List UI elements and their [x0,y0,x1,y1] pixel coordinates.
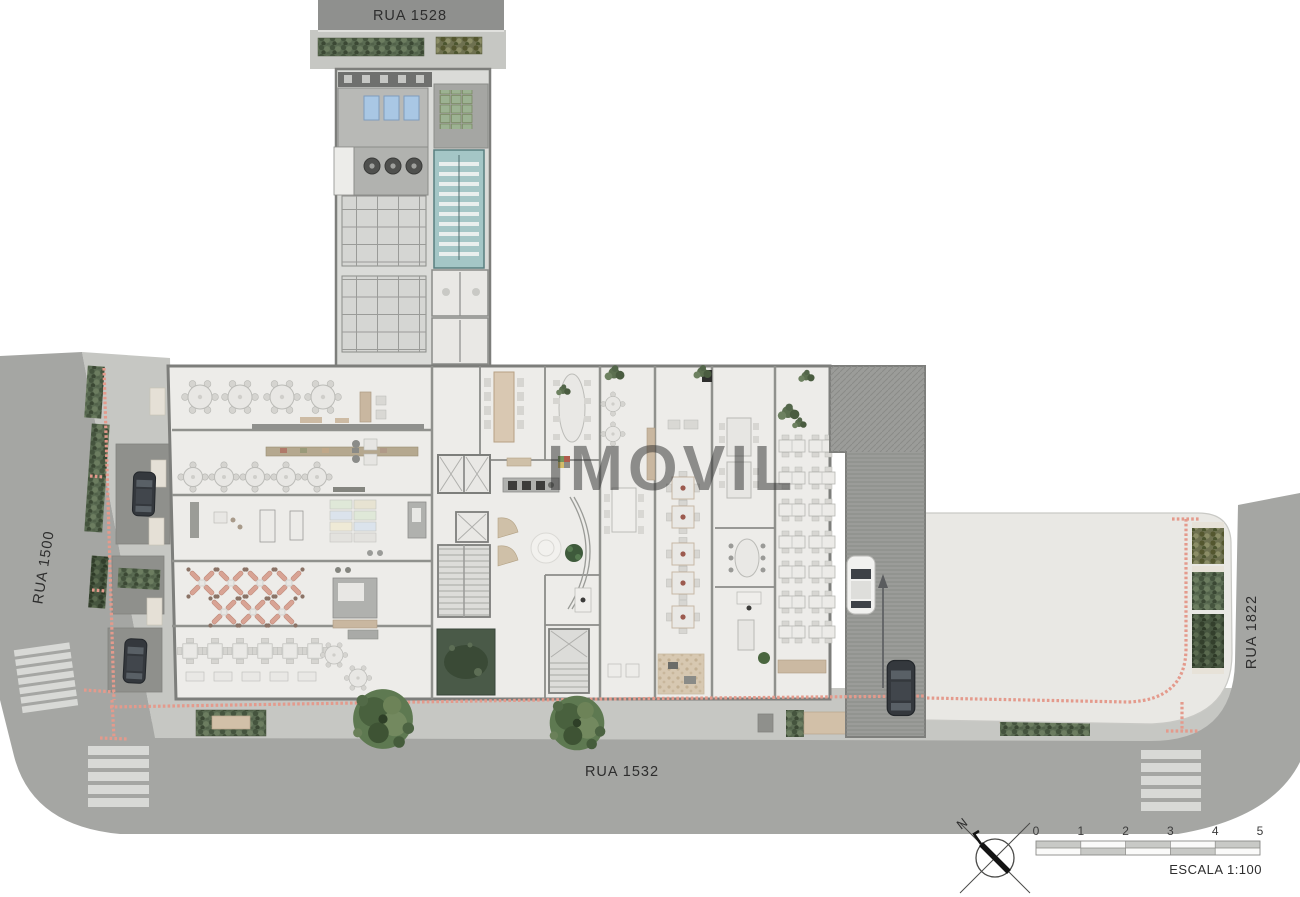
chair-dot [729,556,734,561]
exiting-car [887,661,915,716]
small-table [626,664,639,677]
counter-inner [338,583,364,601]
seat [376,396,386,405]
small-room [334,147,354,195]
hedge [436,37,482,54]
locker-grid [342,196,426,266]
equipment-dot [411,163,416,168]
bar-item [300,448,307,453]
small-table [608,664,621,677]
scale-tick-5: 5 [1257,824,1264,838]
desk [364,439,377,450]
chair-dot [729,568,734,573]
counter-items [335,418,349,423]
chair [604,510,610,518]
skylight [364,96,379,120]
counter [348,630,378,639]
hedge [117,568,160,590]
scale-tick-2: 2 [1122,824,1129,838]
chair [517,392,524,401]
shelf [333,620,377,628]
planter-bench [147,598,162,625]
chair [584,416,591,422]
equipment-dot [369,163,374,168]
street-label-top: RUA 1528 [373,8,447,24]
planter-hedge [786,710,804,737]
hedge [318,38,424,56]
lobby-plant [565,544,583,562]
shelf [190,502,199,538]
scale-tick-3: 3 [1167,824,1174,838]
plant-leaf [575,554,581,560]
pantry-item [668,420,680,429]
planter-bench [149,518,164,545]
chair [484,406,491,415]
top-sidewalk-hedges [318,37,482,56]
chair [584,380,591,386]
chair-dot [729,544,734,549]
appliance [508,481,517,490]
ramp-fan-hatch [830,366,925,452]
planter-cap [1192,522,1224,528]
appliance [522,481,531,490]
table [738,620,754,650]
planter-bench [804,712,846,734]
chair-dot [581,598,586,603]
rug [658,654,704,694]
stair-treads [550,659,588,692]
bar-item [352,448,359,453]
bench [333,487,365,492]
chair [604,526,610,534]
chair-dot [761,568,766,573]
chair [638,526,644,534]
chair-dot [761,544,766,549]
stool [377,550,383,556]
planter-cap [1192,668,1224,674]
bench-table [186,672,204,681]
gate-post [398,75,406,83]
chair-dot [761,556,766,561]
chair [517,420,524,429]
bench-table [270,672,288,681]
garden-leaf [468,643,473,648]
hedge [1192,528,1224,564]
watermark: IMOVIL [547,432,797,504]
display-case [290,511,303,540]
white-car [847,556,875,614]
fixture [442,288,450,296]
planter-bench [150,388,165,415]
reception-desk [507,458,531,466]
round-rug [531,533,561,563]
plant-leaf [567,546,573,552]
stool [335,567,341,573]
bench-table [242,672,260,681]
planter-cap [1192,566,1224,572]
scale-label: ESCALA 1:100 [1169,862,1262,877]
site-plan: IMOVIL RUA 1528 RUA 1500 RUA 1532 RUA 18… [0,0,1300,897]
chair [638,510,644,518]
chair [484,378,491,387]
scale-bar-cells [1036,841,1260,855]
gate-post [362,75,370,83]
building [168,69,835,699]
chair [517,378,524,387]
street-label-right: RUA 1822 [1244,595,1260,669]
stool [345,567,351,573]
display-case [260,510,275,542]
plant [758,652,770,664]
desk [737,592,761,604]
bar-item [280,448,287,453]
appliance [536,481,545,490]
counter-items [300,417,322,423]
chair [753,423,759,430]
dining-table [494,372,514,442]
fixture [472,288,480,296]
garden-leaf [474,668,482,676]
service-counter [252,424,424,429]
skylight [404,96,419,120]
chair [719,423,725,430]
hedge [84,366,105,419]
hedge [1192,572,1224,610]
street-label-bottom: RUA 1532 [585,764,659,780]
chair-dot [747,606,752,611]
floor-plan-drawing: IMOVIL RUA 1528 RUA 1500 RUA 1532 RUA 18… [0,0,1300,897]
display-table [214,512,227,523]
oval-table [735,539,759,577]
scale-tick-1: 1 [1077,824,1084,838]
bench-table [298,672,316,681]
utility-box [758,714,773,732]
bar-counter [266,447,418,456]
tower-wing [334,69,490,366]
desk [364,454,377,465]
bar-item [322,448,329,453]
hedge [88,556,109,609]
bike-racks [439,90,473,129]
bar-item [380,448,387,453]
locker-grid [342,276,426,352]
chair [553,398,560,404]
parked-car [132,472,156,517]
chair [553,380,560,386]
parked-car [123,638,147,683]
equipment-dot [390,163,395,168]
chair [553,416,560,422]
chair [484,392,491,401]
scale-tick-0: 0 [1033,824,1040,838]
stool [352,440,360,448]
planter-bench [212,716,250,729]
skylight [384,96,399,120]
pantry-item [684,420,698,429]
rug-item [684,676,696,684]
gate-post [416,75,424,83]
garden-leaf [449,645,455,651]
display-item [238,525,243,530]
rug-item [668,662,678,669]
seat [376,410,386,419]
hedge [1192,614,1224,668]
counter [360,392,371,422]
display-item [231,518,236,523]
sink [412,508,421,522]
gate-post [344,75,352,83]
planter-hedge [1000,722,1090,736]
chair [517,406,524,415]
counter [778,660,826,673]
gate-post [380,75,388,83]
chair [584,398,591,404]
bench-table [214,672,232,681]
chair [484,420,491,429]
scale-tick-4: 4 [1212,824,1219,838]
stool [367,550,373,556]
stool [352,455,360,463]
